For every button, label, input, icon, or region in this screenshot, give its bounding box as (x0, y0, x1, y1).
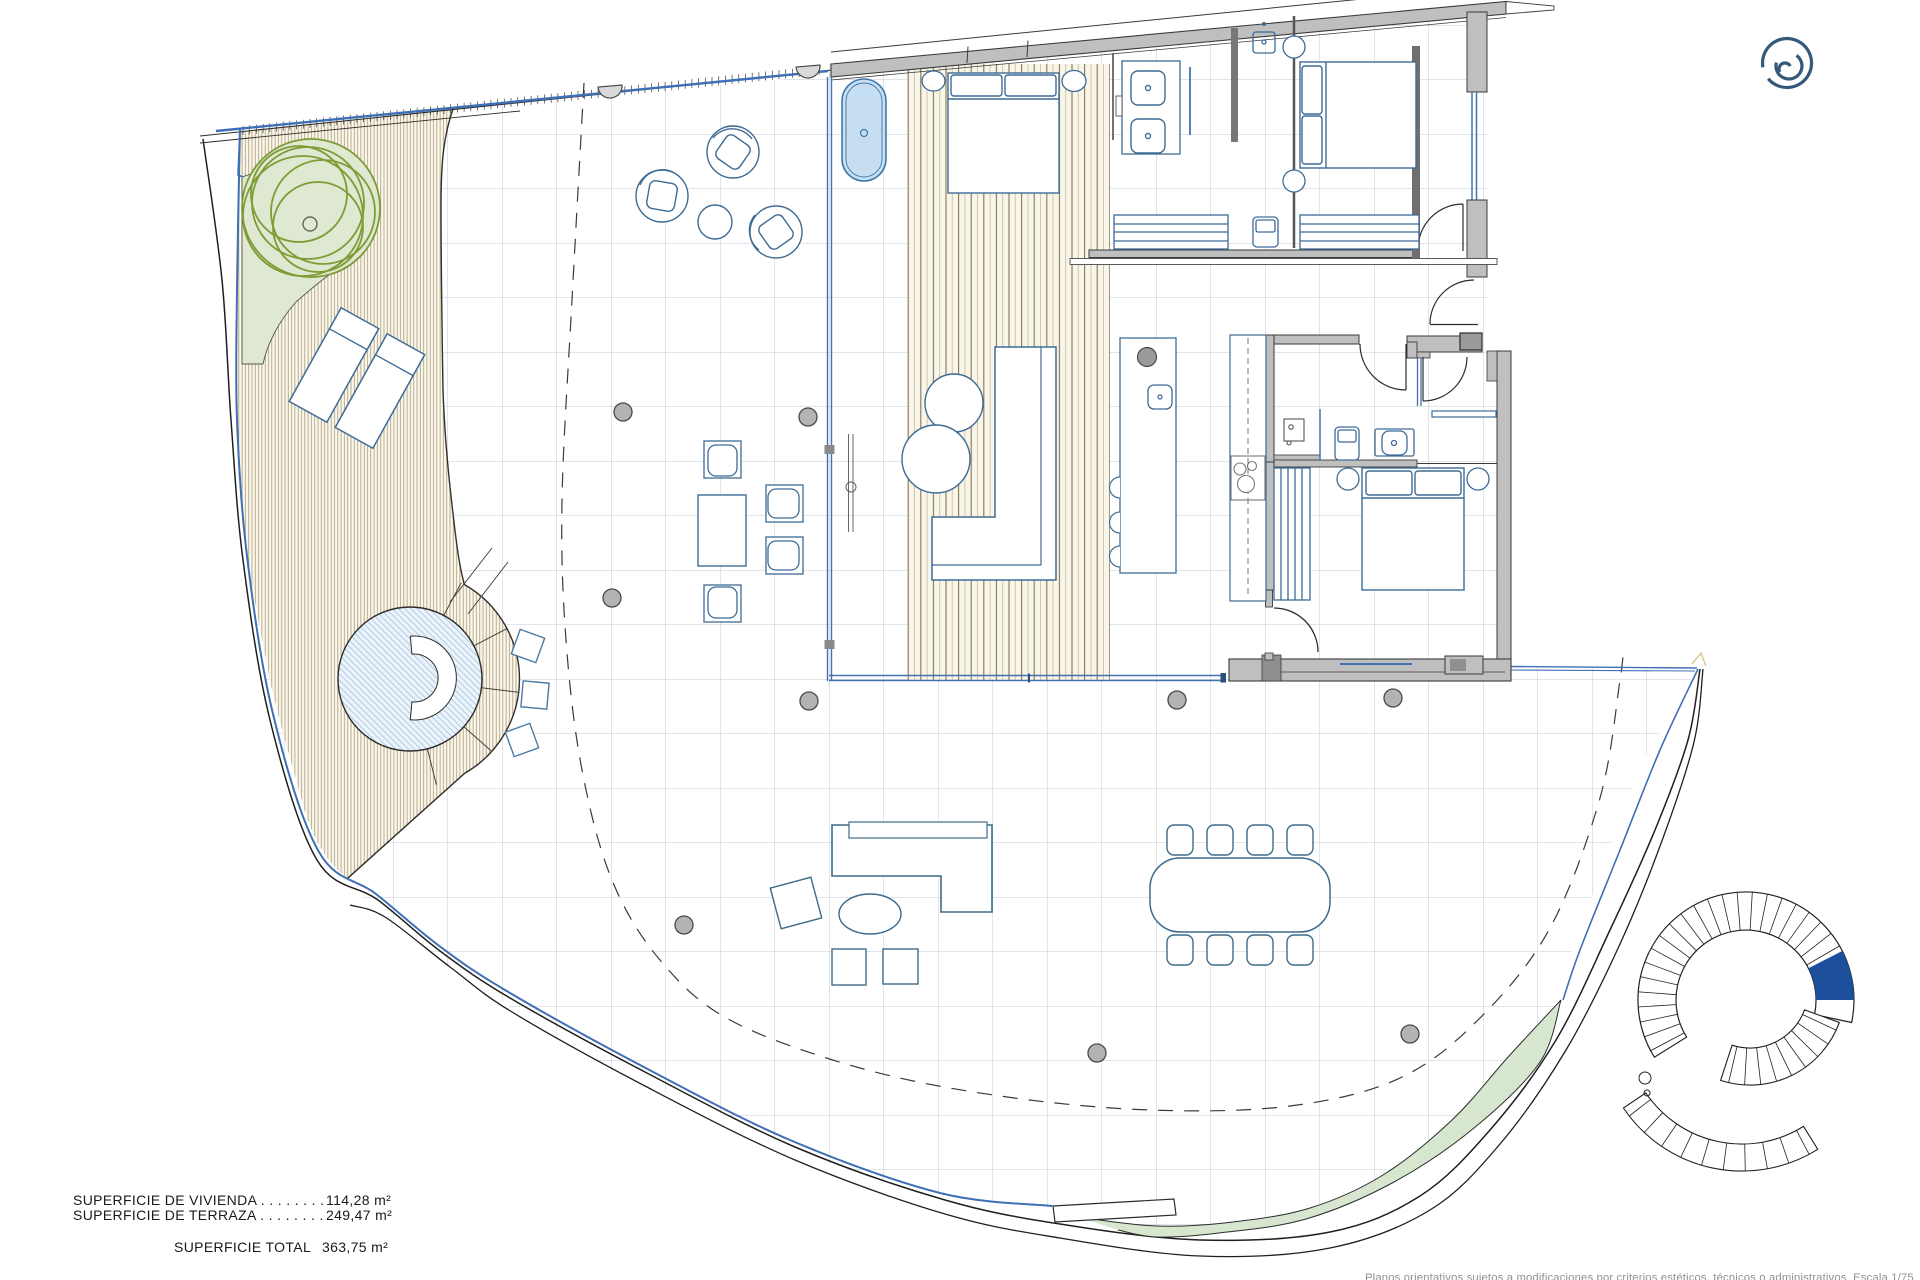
svg-text:114,28 m²: 114,28 m² (326, 1192, 391, 1208)
svg-text:249,47 m²: 249,47 m² (326, 1207, 392, 1223)
svg-text:SUPERFICIE DE TERRAZA . . . .: SUPERFICIE DE TERRAZA . . . . . . . . (73, 1207, 324, 1223)
svg-text:SUPERFICIE DE VIVIENDA . . . .: SUPERFICIE DE VIVIENDA . . . . . . . . (73, 1192, 324, 1208)
svg-text:SUPERFICIE TOTAL: SUPERFICIE TOTAL (174, 1239, 311, 1255)
svg-text:363,75 m²: 363,75 m² (322, 1239, 388, 1255)
svg-text:Planos orientativos sujetos a: Planos orientativos sujetos a modificaci… (1365, 1272, 1914, 1280)
